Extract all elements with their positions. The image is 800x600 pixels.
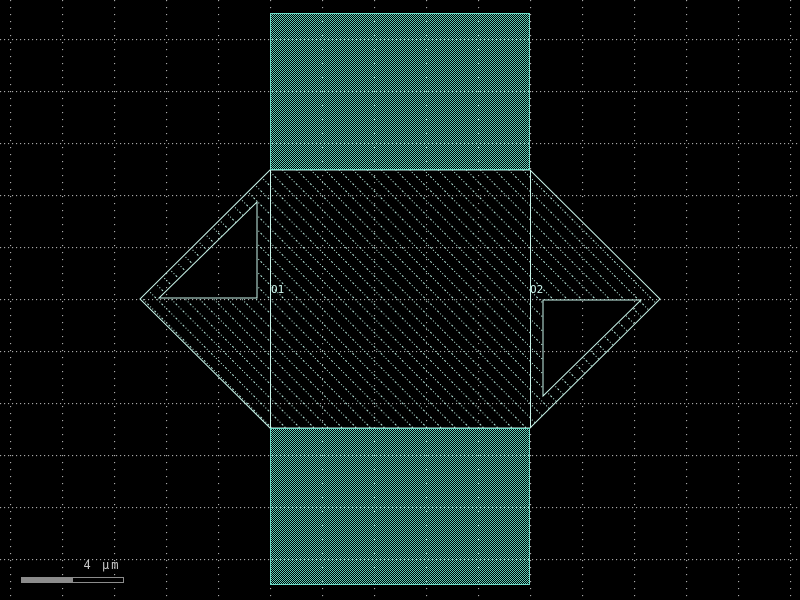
teal-rect-top[interactable] xyxy=(271,14,530,170)
layout-canvas[interactable]: O1 O2 4 µm xyxy=(0,0,800,600)
scale-bar-segment-filled xyxy=(21,577,72,583)
layout-shapes: O1 O2 xyxy=(0,0,800,600)
teal-rect-bottom[interactable] xyxy=(271,429,530,585)
hatched-hexagon-polygon[interactable] xyxy=(140,170,660,428)
scale-bar-segment-outline xyxy=(72,577,124,583)
scale-bar-label: 4 µm xyxy=(72,558,132,572)
label-o1[interactable]: O1 xyxy=(271,283,284,296)
label-o2[interactable]: O2 xyxy=(530,283,543,296)
